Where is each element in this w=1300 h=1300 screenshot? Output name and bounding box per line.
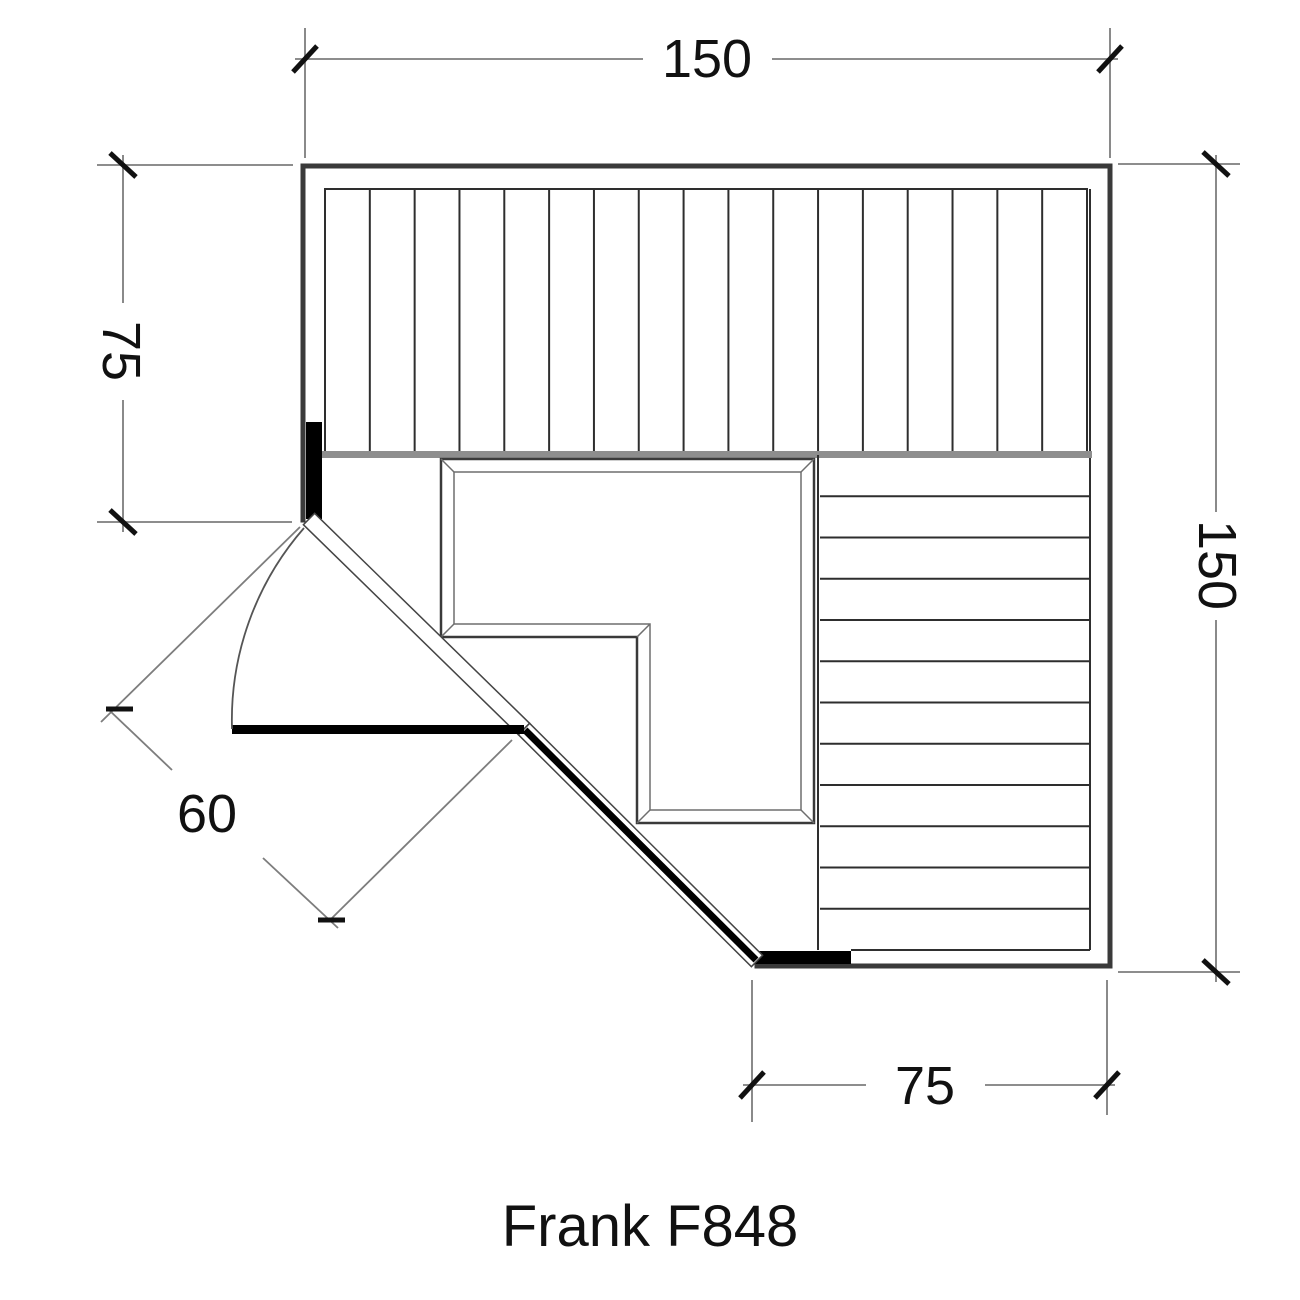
platform-outer-edge <box>441 459 814 823</box>
right-bench-slats <box>820 496 1090 909</box>
top-bench-slats <box>370 189 1042 452</box>
middle-bench-platform <box>441 459 814 823</box>
top-bench-front-edge <box>322 451 1092 458</box>
right-bench <box>818 455 1090 950</box>
drawing-title: Frank F848 <box>502 1194 799 1259</box>
dim-door-ext-a <box>101 527 300 722</box>
dimension-right: 150 <box>1118 152 1247 984</box>
top-bench-frame <box>325 189 1087 452</box>
dim-door-label: 60 <box>177 784 237 844</box>
dim-door-line-a <box>109 710 172 770</box>
dim-bottom-label: 75 <box>895 1056 955 1116</box>
sauna-floor-plan-page: 150 75 150 75 60 <box>0 0 1300 1300</box>
top-bench <box>322 189 1092 458</box>
dim-right-label: 150 <box>1187 520 1247 610</box>
dim-door-ext-b <box>329 740 512 921</box>
wall-post-left <box>306 422 322 519</box>
dimension-top: 150 <box>293 28 1122 158</box>
floor-plan-svg: 150 75 150 75 60 <box>0 0 1300 1300</box>
dimension-bottom: 75 <box>740 980 1119 1122</box>
dimension-left: 75 <box>91 153 293 534</box>
dim-top-label: 150 <box>662 29 752 89</box>
dim-left-label: 75 <box>91 321 151 381</box>
wall-post-bottom <box>749 951 851 964</box>
